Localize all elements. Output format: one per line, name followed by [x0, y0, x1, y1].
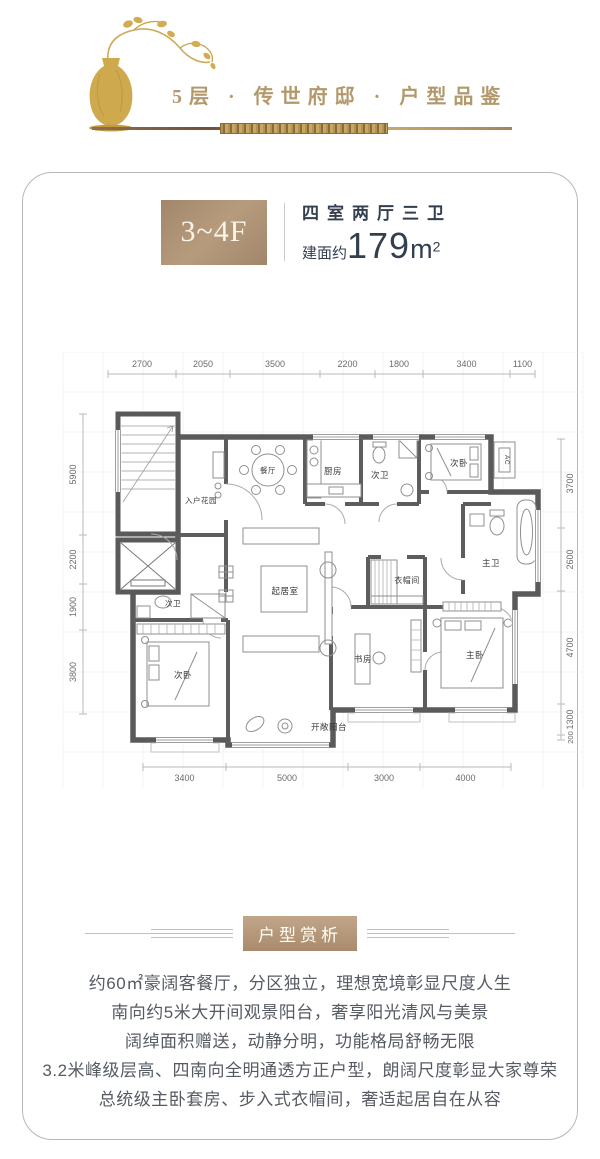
brand-header: 5层 · 传世府邸 · 户型品鉴 — [0, 0, 600, 160]
shoe-cabinet — [213, 452, 224, 478]
floor-plan: 2700205035002200180034001100340050003000… — [53, 352, 593, 788]
area-line: 建面约179m2 — [302, 225, 452, 267]
dimension-label: 2050 — [193, 359, 213, 369]
dimension-label: 1100 — [513, 359, 532, 369]
room-label-living: 起居室 — [271, 586, 298, 596]
description-line: 总统级主卧套房、步入式衣帽间，奢适起居自在从容 — [23, 1085, 577, 1114]
section-badge: 户型赏析 — [243, 916, 357, 951]
dimension-label: 3400 — [174, 773, 194, 783]
dimension-label: 2200 — [337, 359, 357, 369]
room-label-bed2-top: 次卧 — [450, 458, 468, 468]
vertical-divider — [284, 203, 285, 261]
dimension-label: 2700 — [132, 359, 152, 369]
description-line: 南向约5米大开间观景阳台，奢享阳光清风与美景 — [23, 998, 577, 1027]
area-superscript: 2 — [433, 239, 441, 255]
description-line: 约60㎡豪阔客餐厅，分区独立，理想宽境彰显尺度人生 — [23, 969, 577, 998]
description-line: 3.2米峰级层高、四南向全明通透方正户型，朗阔尺度彰显大家尊荣 — [23, 1056, 577, 1085]
dimension-label: 3800 — [68, 662, 78, 682]
room-label-study: 书房 — [354, 654, 372, 664]
divider-left-lines — [85, 929, 233, 938]
room-label-ac: AC — [503, 455, 510, 465]
dimension-label: 200 — [566, 731, 575, 744]
description-block: 约60㎡豪阔客餐厅，分区独立，理想宽境彰显尺度人生 南向约5米大开间观景阳台，奢… — [23, 969, 577, 1114]
vase-body — [90, 58, 133, 126]
dimension-label: 3500 — [265, 359, 285, 369]
room-label-bath2-top: 次卫 — [371, 470, 389, 480]
section-divider: 户型赏析 — [85, 917, 515, 949]
greek-key-ornament — [220, 123, 388, 134]
room-label-dining: 餐厅 — [260, 466, 276, 475]
dimension-label: 2600 — [565, 549, 575, 569]
plan-summary: 四室两厅三卫 建面约179m2 — [302, 197, 452, 267]
area-value: 179 — [347, 225, 410, 266]
area-unit: m — [410, 234, 433, 264]
floor-plan-container: 2700205035002200180034001100340050003000… — [53, 352, 593, 793]
elevator — [118, 540, 178, 592]
dimension-label: 5900 — [68, 464, 78, 484]
floorplan-card: 3~4F 四室两厅三卫 建面约179m2 — [22, 172, 578, 1140]
stairs — [118, 414, 178, 534]
room-label-master-bed: 主卧 — [466, 650, 484, 660]
dimension-label: 5000 — [277, 773, 297, 783]
page-title: 5层 · 传世府邸 · 户型品鉴 — [172, 80, 507, 109]
floor-range-badge: 3~4F — [161, 200, 267, 265]
layout-type: 四室两厅三卫 — [302, 199, 452, 224]
room-label-balcony: 开敞阳台 — [311, 722, 347, 732]
room-label-bath2-left: 次卫 — [165, 598, 181, 608]
dimension-label: 1800 — [389, 359, 409, 369]
room-label-entry: 入户花园 — [185, 495, 217, 505]
room-label-closet: 衣帽间 — [394, 575, 420, 585]
dimension-label: 1300 — [565, 709, 575, 729]
flyer-page: 5层 · 传世府邸 · 户型品鉴 3~4F 四室两厅三卫 建面约179m2 — [0, 0, 600, 1159]
description-line: 阔绰面积赠送，动静分明，功能格局舒畅无限 — [23, 1027, 577, 1056]
dimension-label: 3000 — [374, 773, 394, 783]
decorative-divider — [92, 122, 512, 134]
divider-right-lines — [367, 929, 515, 938]
room-label-bed2-left: 次卧 — [174, 670, 192, 680]
room-label-master-bath: 主卫 — [482, 558, 500, 568]
room-label-kitchen: 厨房 — [324, 466, 342, 476]
dimension-label: 3400 — [456, 359, 476, 369]
dimension-label: 4000 — [455, 773, 475, 783]
dimension-label: 1900 — [68, 597, 78, 617]
dimension-label: 4700 — [565, 637, 575, 657]
area-prefix: 建面约 — [302, 245, 347, 262]
plan-header: 3~4F 四室两厅三卫 建面约179m2 — [161, 199, 577, 265]
dimension-label: 2200 — [68, 549, 78, 569]
dimension-label: 3700 — [565, 473, 575, 493]
